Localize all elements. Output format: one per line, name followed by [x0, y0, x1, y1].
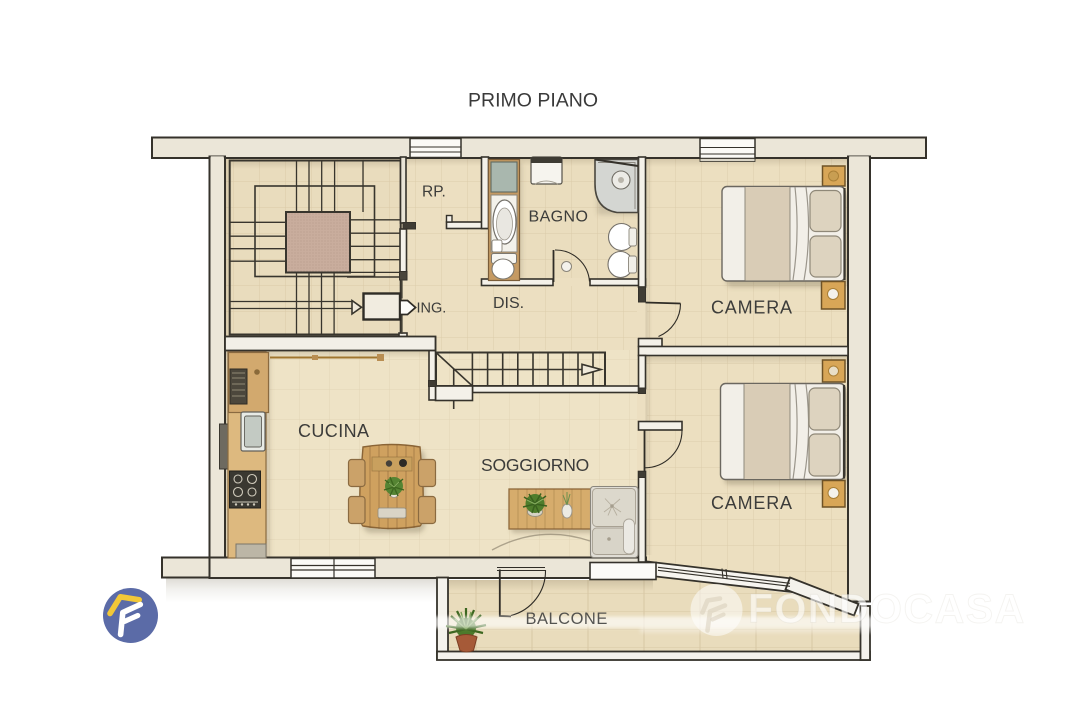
svg-text:FONDOCASA: FONDOCASA — [748, 586, 1026, 632]
svg-text:CAMERA: CAMERA — [711, 493, 793, 513]
svg-text:RP.: RP. — [422, 184, 446, 201]
svg-text:PRIMO PIANO: PRIMO PIANO — [468, 90, 598, 112]
svg-text:BAGNO: BAGNO — [529, 209, 589, 226]
svg-text:CAMERA: CAMERA — [711, 298, 793, 318]
svg-text:CUCINA: CUCINA — [298, 421, 369, 441]
svg-text:ING.: ING. — [417, 301, 447, 317]
svg-text:BALCONE: BALCONE — [526, 610, 608, 628]
svg-text:SOGGIORNO: SOGGIORNO — [481, 455, 589, 475]
svg-text:DIS.: DIS. — [493, 295, 524, 312]
